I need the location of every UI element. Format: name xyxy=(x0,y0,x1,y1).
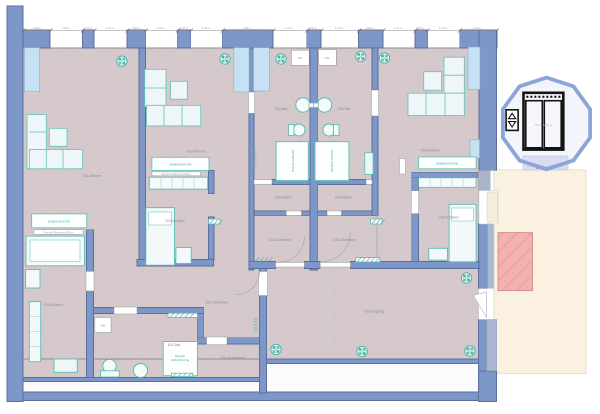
svg-text:D03-Garderobe: D03-Garderobe xyxy=(333,238,355,242)
svg-text:1.50 m: 1.50 m xyxy=(202,26,210,30)
svg-text:D02-Bad: D02-Bad xyxy=(275,107,288,111)
svg-text:0.44 m: 0.44 m xyxy=(84,26,92,30)
svg-text:D01-Garderobe: D01-Garderobe xyxy=(206,300,228,304)
svg-text:D01-Bad: D01-Bad xyxy=(168,343,181,347)
svg-text:0.47 m: 0.47 m xyxy=(180,26,188,30)
svg-text:EINBAUKÜCHE: EINBAUKÜCHE xyxy=(170,163,193,167)
svg-text:1.51 m: 1.51 m xyxy=(157,26,165,30)
svg-text:Dusche 120x120: Dusche 120x120 xyxy=(330,150,334,173)
svg-text:BA-1 Aufzug: BA-1 Aufzug xyxy=(535,123,552,127)
svg-text:D02-Schlafen: D02-Schlafen xyxy=(165,219,185,223)
svg-text:120x120 2 tlg: 120x120 2 tlg xyxy=(171,358,189,362)
svg-text:D01-Wohnen: D01-Wohnen xyxy=(83,174,102,178)
svg-text:D02-Wohnen: D02-Wohnen xyxy=(187,149,206,153)
svg-text:D01-Schlafen: D01-Schlafen xyxy=(43,303,63,307)
svg-text:0.90 m: 0.90 m xyxy=(33,26,41,30)
svg-text:EINBAUKÜCHE: EINBAUKÜCHE xyxy=(48,220,71,224)
svg-text:D02-Abstell: D02-Abstell xyxy=(275,195,292,199)
svg-text:1.51 m: 1.51 m xyxy=(62,26,70,30)
svg-text:Oberteil / Brüstung 140cm: Oberteil / Brüstung 140cm xyxy=(43,230,73,234)
svg-text:D01-Abstellraum: D01-Abstellraum xyxy=(221,356,245,360)
svg-text:0.80 m: 0.80 m xyxy=(309,26,317,30)
svg-text:D14 (Zugang): D14 (Zugang) xyxy=(365,309,385,313)
svg-text:Dusche 120x120: Dusche 120x120 xyxy=(291,149,295,172)
svg-text:WM: WM xyxy=(298,56,303,60)
svg-text:Oberteil / Brüstung 140cm: Oberteil / Brüstung 140cm xyxy=(161,172,191,176)
svg-text:1.77 m: 1.77 m xyxy=(285,26,293,30)
svg-text:0.86 m: 0.86 m xyxy=(366,26,374,30)
svg-text:1.71 m: 1.71 m xyxy=(106,26,114,30)
svg-text:WM: WM xyxy=(325,56,330,60)
svg-text:WM: WM xyxy=(101,324,106,328)
svg-text:0.60 m: 0.60 m xyxy=(132,26,140,30)
svg-text:D03-Wohnen: D03-Wohnen xyxy=(421,149,440,153)
svg-text:D03-Abstell: D03-Abstell xyxy=(335,195,352,199)
svg-text:D03-Schlafen: D03-Schlafen xyxy=(439,215,459,219)
svg-text:EINBAUKÜCHE: EINBAUKÜCHE xyxy=(436,162,459,166)
svg-text:D02-Garderobe: D02-Garderobe xyxy=(269,238,291,242)
svg-text:1.71 m: 1.71 m xyxy=(335,26,343,30)
svg-text:0.60 m: 0.60 m xyxy=(416,26,424,30)
svg-text:2.56 m: 2.56 m xyxy=(243,26,251,30)
svg-text:1.77 m: 1.77 m xyxy=(394,26,402,30)
svg-text:1.29 m: 1.29 m xyxy=(473,26,481,30)
svg-text:D03-Bad: D03-Bad xyxy=(338,107,351,111)
svg-text:1.77 m: 1.77 m xyxy=(439,26,447,30)
